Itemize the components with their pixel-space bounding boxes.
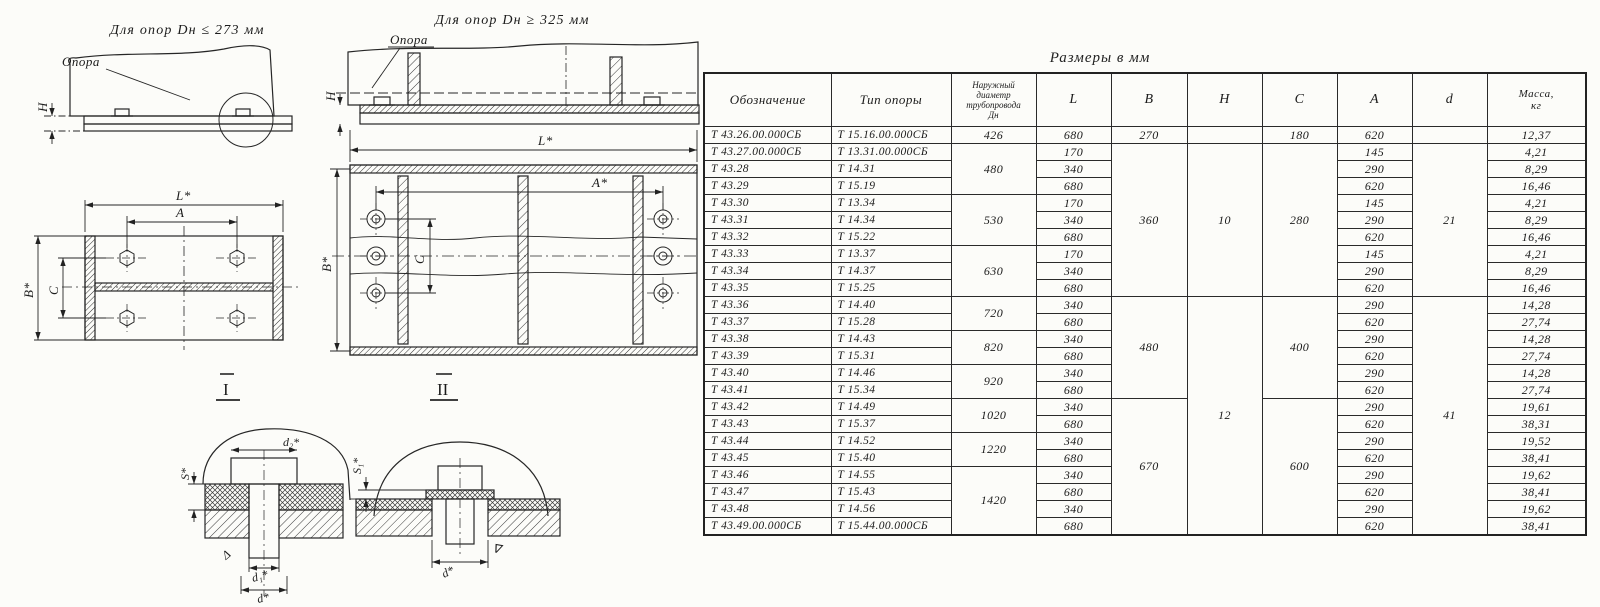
cell-a: 290 xyxy=(1337,331,1412,348)
cell-mass: 4,21 xyxy=(1487,144,1586,161)
cell-h: 12 xyxy=(1187,297,1262,536)
base-section xyxy=(205,510,249,538)
cell-c: 600 xyxy=(1262,399,1337,536)
dim-c-label: C xyxy=(412,255,427,264)
cell-a: 620 xyxy=(1337,416,1412,433)
cell-a: 620 xyxy=(1337,518,1412,536)
column-header-mass: Масса,кг xyxy=(1487,73,1586,127)
gasket-section xyxy=(356,499,432,510)
column-header-a: A xyxy=(1337,73,1412,127)
cell-d: 41 xyxy=(1412,297,1487,536)
cell-l: 340 xyxy=(1036,263,1111,280)
cell-l: 680 xyxy=(1036,450,1111,467)
bolt xyxy=(111,109,133,116)
base-section xyxy=(488,510,560,536)
cell-support-type: Т 15.28 xyxy=(831,314,951,331)
cell-pipe-diameter: 1220 xyxy=(951,433,1036,467)
cell-designation: Т 43.28 xyxy=(704,161,831,178)
cell-support-type: Т 14.40 xyxy=(831,297,951,314)
cell-mass: 16,46 xyxy=(1487,178,1586,195)
cell-l: 680 xyxy=(1036,229,1111,246)
svg-text:II: II xyxy=(437,380,449,399)
cell-a: 620 xyxy=(1337,280,1412,297)
bolt xyxy=(639,97,665,105)
cell-designation: Т 43.30 xyxy=(704,195,831,212)
gasket-section xyxy=(279,484,343,510)
dim-l-label: L* xyxy=(175,188,191,203)
cell-designation: Т 43.35 xyxy=(704,280,831,297)
cell-pipe-diameter: 1420 xyxy=(951,467,1036,536)
cell-support-type: Т 15.43 xyxy=(831,484,951,501)
cell-support-type: Т 14.52 xyxy=(831,433,951,450)
cell-a: 145 xyxy=(1337,246,1412,263)
leader-line xyxy=(106,69,190,100)
rib-section xyxy=(408,53,420,105)
cell-designation: Т 43.33 xyxy=(704,246,831,263)
detail-view-1: d₂* S* Δ d₁* d* xyxy=(178,429,350,606)
column-header-support-type: Тип опоры xyxy=(831,73,951,127)
cell-mass: 14,28 xyxy=(1487,365,1586,382)
table-row: Т 43.26.00.000СБТ 15.16.00.000СБ42668027… xyxy=(704,127,1586,144)
cell-l: 680 xyxy=(1036,382,1111,399)
cell-b: 670 xyxy=(1111,399,1187,536)
cell-mass: 14,28 xyxy=(1487,331,1586,348)
cell-designation: Т 43.37 xyxy=(704,314,831,331)
cell-a: 620 xyxy=(1337,450,1412,467)
cell-a: 620 xyxy=(1337,229,1412,246)
column-header-designation: Обозначение xyxy=(704,73,831,127)
cell-support-type: Т 15.44.00.000СБ xyxy=(831,518,951,536)
section-mark-1: I xyxy=(216,374,240,400)
plan-view-small-support: L* A B* C I xyxy=(21,188,300,400)
cell-a: 620 xyxy=(1337,178,1412,195)
cell-designation: Т 43.34 xyxy=(704,263,831,280)
cell-designation: Т 43.26.00.000СБ xyxy=(704,127,831,144)
bolt xyxy=(369,97,395,105)
view2-support-label: Опора xyxy=(390,32,428,47)
dim-h-label: H xyxy=(323,91,338,102)
cell-designation: Т 43.43 xyxy=(704,416,831,433)
column-header-b: B xyxy=(1111,73,1187,127)
table-row: Т 43.36Т 14.40720340480124002904114,28 xyxy=(704,297,1586,314)
cell-support-type: Т 15.40 xyxy=(831,450,951,467)
dim-l: L* xyxy=(350,130,697,162)
cell-mass: 38,31 xyxy=(1487,416,1586,433)
cell-designation: Т 43.31 xyxy=(704,212,831,229)
cell-l: 680 xyxy=(1036,348,1111,365)
cell-h: 10 xyxy=(1187,144,1262,297)
cell-support-type: Т 14.37 xyxy=(831,263,951,280)
cell-designation: Т 43.48 xyxy=(704,501,831,518)
cell-pipe-diameter: 426 xyxy=(951,127,1036,144)
column-header-c: C xyxy=(1262,73,1337,127)
cell-designation: Т 43.42 xyxy=(704,399,831,416)
cell-a: 290 xyxy=(1337,365,1412,382)
dim-c-label: C xyxy=(46,286,61,295)
cell-support-type: Т 13.31.00.000СБ xyxy=(831,144,951,161)
dim-d2: d₂* xyxy=(231,435,299,450)
cell-mass: 8,29 xyxy=(1487,263,1586,280)
cell-mass: 38,41 xyxy=(1487,450,1586,467)
cell-a: 145 xyxy=(1337,195,1412,212)
cell-support-type: Т 15.22 xyxy=(831,229,951,246)
cell-c: 180 xyxy=(1262,127,1337,144)
cell-a: 290 xyxy=(1337,501,1412,518)
cell-support-type: Т 14.43 xyxy=(831,331,951,348)
cell-support-type: Т 15.16.00.000СБ xyxy=(831,127,951,144)
cell-support-type: Т 14.34 xyxy=(831,212,951,229)
cell-l: 340 xyxy=(1036,365,1111,382)
svg-text:S₁*: S₁* xyxy=(350,458,364,474)
cell-mass: 19,62 xyxy=(1487,467,1586,484)
cell-a: 290 xyxy=(1337,161,1412,178)
cell-mass: 19,61 xyxy=(1487,399,1586,416)
bolt-hole xyxy=(216,304,258,332)
surface-finish-mark: ∇ xyxy=(491,541,504,557)
cell-l: 680 xyxy=(1036,280,1111,297)
cell-a: 620 xyxy=(1337,382,1412,399)
cell-mass: 27,74 xyxy=(1487,348,1586,365)
cell-a: 620 xyxy=(1337,348,1412,365)
cell-support-type: Т 15.25 xyxy=(831,280,951,297)
cell-b: 480 xyxy=(1111,297,1187,399)
cell-designation: Т 43.47 xyxy=(704,484,831,501)
cell-l: 170 xyxy=(1036,246,1111,263)
svg-text:d*: d* xyxy=(439,563,456,581)
cell-designation: Т 43.32 xyxy=(704,229,831,246)
cell-b: 270 xyxy=(1111,127,1187,144)
cell-l: 680 xyxy=(1036,484,1111,501)
detail-view-2: S₁* d* ∇ xyxy=(350,442,560,581)
support-drawings: Для опор Dн ≤ 273 мм Опора H xyxy=(0,0,700,607)
cell-l: 340 xyxy=(1036,433,1111,450)
cell-mass: 8,29 xyxy=(1487,212,1586,229)
cell-designation: Т 43.29 xyxy=(704,178,831,195)
svg-text:d₂*: d₂* xyxy=(283,435,299,449)
cell-pipe-diameter: 630 xyxy=(951,246,1036,297)
cell-d xyxy=(1412,127,1487,144)
cell-c: 280 xyxy=(1262,144,1337,297)
dim-h: H xyxy=(323,91,340,136)
cell-a: 290 xyxy=(1337,399,1412,416)
cell-designation: Т 43.40 xyxy=(704,365,831,382)
cell-designation: Т 43.41 xyxy=(704,382,831,399)
cell-a: 290 xyxy=(1337,212,1412,229)
dim-s: S* xyxy=(178,468,205,522)
cell-support-type: Т 15.31 xyxy=(831,348,951,365)
cell-d: 21 xyxy=(1412,144,1487,297)
rib-section xyxy=(610,57,622,105)
cell-mass: 16,46 xyxy=(1487,280,1586,297)
cell-a: 290 xyxy=(1337,263,1412,280)
cell-designation: Т 43.38 xyxy=(704,331,831,348)
table-row: Т 43.27.00.000СБТ 13.31.00.000СБ48017036… xyxy=(704,144,1586,161)
cell-support-type: Т 14.31 xyxy=(831,161,951,178)
cell-mass: 12,37 xyxy=(1487,127,1586,144)
table-header: ОбозначениеТип опорыНаружныйдиаметртрубо… xyxy=(704,73,1586,127)
dim-l-label: L* xyxy=(537,133,553,148)
svg-text:d₁*: d₁* xyxy=(250,567,269,585)
cell-mass: 4,21 xyxy=(1487,246,1586,263)
gasket-section xyxy=(488,499,560,510)
view1-title: Для опор Dн ≤ 273 мм xyxy=(108,23,265,38)
cell-support-type: Т 15.37 xyxy=(831,416,951,433)
plan-view-large-support: L* A* B* C II xyxy=(319,130,700,400)
detail-callout-circle xyxy=(219,93,273,147)
cell-a: 620 xyxy=(1337,484,1412,501)
cell-a: 620 xyxy=(1337,127,1412,144)
cell-l: 340 xyxy=(1036,212,1111,229)
cell-l: 340 xyxy=(1036,161,1111,178)
leader-line xyxy=(372,48,400,88)
cell-pipe-diameter: 720 xyxy=(951,297,1036,331)
cell-pipe-diameter: 920 xyxy=(951,365,1036,399)
bolt-hole xyxy=(647,247,679,265)
rib-section xyxy=(518,176,528,344)
cell-c: 400 xyxy=(1262,297,1337,399)
dim-h-label: H xyxy=(35,102,50,113)
cell-mass: 8,29 xyxy=(1487,161,1586,178)
cell-mass: 19,62 xyxy=(1487,501,1586,518)
cell-a: 290 xyxy=(1337,467,1412,484)
base-section xyxy=(279,510,343,538)
cell-a: 145 xyxy=(1337,144,1412,161)
dim-b-label: B* xyxy=(319,257,334,272)
dim-a-label: A* xyxy=(591,175,607,190)
weld-mark: Δ xyxy=(218,547,233,563)
cell-support-type: Т 13.34 xyxy=(831,195,951,212)
cell-mass: 14,28 xyxy=(1487,297,1586,314)
dim-a-label: A xyxy=(175,205,184,220)
svg-text:S*: S* xyxy=(178,468,192,480)
cell-l: 340 xyxy=(1036,331,1111,348)
bolt-hole xyxy=(106,304,148,332)
cell-mass: 16,46 xyxy=(1487,229,1586,246)
cell-mass: 27,74 xyxy=(1487,382,1586,399)
svg-text:d*: d* xyxy=(256,590,271,606)
cell-pipe-diameter: 530 xyxy=(951,195,1036,246)
section-mark-2: II xyxy=(430,374,458,400)
cell-a: 620 xyxy=(1337,314,1412,331)
cell-l: 340 xyxy=(1036,501,1111,518)
cell-support-type: Т 14.46 xyxy=(831,365,951,382)
cell-designation: Т 43.39 xyxy=(704,348,831,365)
cell-pipe-diameter: 1020 xyxy=(951,399,1036,433)
column-header-pipe-diameter: НаружныйдиаметртрубопроводаДн xyxy=(951,73,1036,127)
cell-support-type: Т 14.56 xyxy=(831,501,951,518)
view2-title: Для опор Dн ≥ 325 мм xyxy=(433,13,590,28)
cell-l: 680 xyxy=(1036,127,1111,144)
cell-l: 340 xyxy=(1036,297,1111,314)
dim-h: H xyxy=(35,102,84,144)
cell-l: 680 xyxy=(1036,416,1111,433)
dim-b: B* xyxy=(319,169,350,351)
dimension-table: ОбозначениеТип опорыНаружныйдиаметртрубо… xyxy=(703,72,1587,536)
cell-l: 680 xyxy=(1036,518,1111,536)
cell-designation: Т 43.45 xyxy=(704,450,831,467)
cell-l: 170 xyxy=(1036,144,1111,161)
washer xyxy=(426,490,494,499)
cell-mass: 38,41 xyxy=(1487,518,1586,536)
base-section xyxy=(356,510,432,536)
cell-l: 680 xyxy=(1036,314,1111,331)
cell-mass: 27,74 xyxy=(1487,314,1586,331)
cell-pipe-diameter: 820 xyxy=(951,331,1036,365)
cell-designation: Т 43.49.00.000СБ xyxy=(704,518,831,536)
cell-mass: 38,41 xyxy=(1487,484,1586,501)
dim-b-label: B* xyxy=(21,283,36,298)
drawing-sheet: Для опор Dн ≤ 273 мм Опора H xyxy=(0,0,1600,607)
rib-section xyxy=(398,176,408,344)
dim-a: A xyxy=(127,205,237,248)
column-header-h: H xyxy=(1187,73,1262,127)
cell-h xyxy=(1187,127,1262,144)
cell-l: 170 xyxy=(1036,195,1111,212)
gasket-section xyxy=(205,484,249,510)
cell-b: 360 xyxy=(1111,144,1187,297)
cell-support-type: Т 15.19 xyxy=(831,178,951,195)
column-header-l: L xyxy=(1036,73,1111,127)
cell-l: 680 xyxy=(1036,178,1111,195)
cell-designation: Т 43.46 xyxy=(704,467,831,484)
cell-support-type: Т 13.37 xyxy=(831,246,951,263)
cell-a: 290 xyxy=(1337,433,1412,450)
cell-l: 340 xyxy=(1036,399,1111,416)
cell-pipe-diameter: 480 xyxy=(951,144,1036,195)
dim-d1: d₁* xyxy=(249,558,279,585)
cell-support-type: Т 14.55 xyxy=(831,467,951,484)
svg-text:I: I xyxy=(223,380,229,399)
cell-mass: 19,52 xyxy=(1487,433,1586,450)
elevation-view-large-support: Для опор Dн ≥ 325 мм Опора xyxy=(323,13,700,136)
cell-designation: Т 43.36 xyxy=(704,297,831,314)
cell-support-type: Т 14.49 xyxy=(831,399,951,416)
cell-designation: Т 43.44 xyxy=(704,433,831,450)
column-header-d: d xyxy=(1412,73,1487,127)
bolt-hole xyxy=(106,244,148,272)
bolt xyxy=(232,109,254,116)
elevation-view-small-support: Для опор Dн ≤ 273 мм Опора H xyxy=(35,23,292,147)
cell-a: 290 xyxy=(1337,297,1412,314)
table-title: Размеры в мм xyxy=(985,50,1215,67)
bolt-hole xyxy=(216,244,258,272)
cell-designation: Т 43.27.00.000СБ xyxy=(704,144,831,161)
cell-mass: 4,21 xyxy=(1487,195,1586,212)
bolt-hole xyxy=(647,277,679,309)
cell-support-type: Т 15.34 xyxy=(831,382,951,399)
cell-l: 340 xyxy=(1036,467,1111,484)
rib-section xyxy=(633,176,643,344)
